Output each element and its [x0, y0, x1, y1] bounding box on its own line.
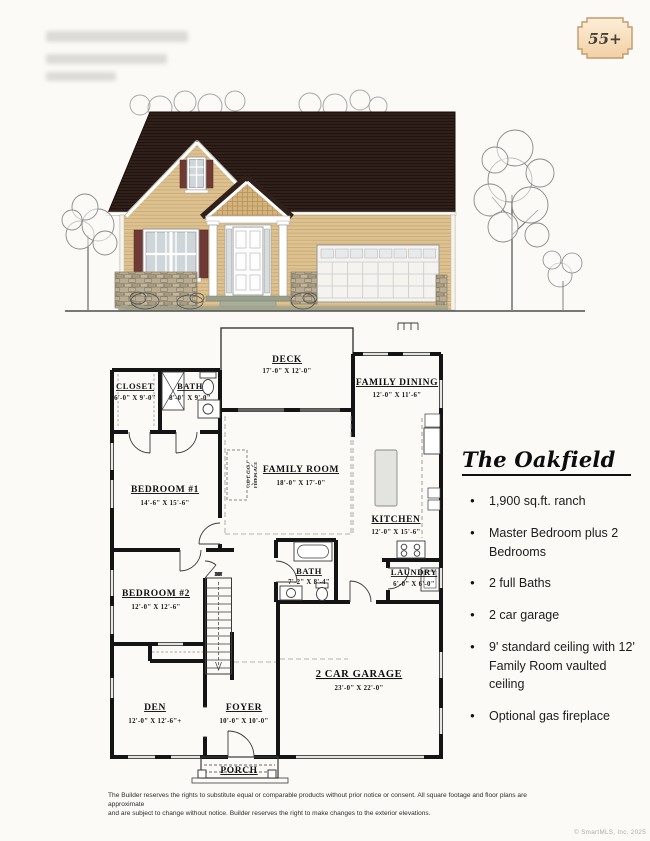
attic-window [180, 157, 213, 193]
room-label-foyer: FOYER [226, 703, 262, 713]
room-dims-kitchen: 12'-0" X 15'-6" [371, 529, 420, 536]
badge-label: 55+ [588, 30, 621, 48]
room-dims-foyer: 10'-0" X 10'-0" [219, 718, 268, 725]
house-elevation-illustration [60, 85, 590, 315]
room-label-closet: CLOSET [116, 381, 154, 391]
room-label-bedroom1: BEDROOM #1 [131, 485, 199, 495]
garage-door [317, 245, 439, 302]
faded-letterhead-line [46, 31, 188, 42]
room-label-deck: DECK [272, 355, 302, 365]
room-dims-family-room: 18'-0" X 17'-0" [276, 480, 325, 487]
front-door [225, 225, 271, 297]
disclaimer-line2: and are subject to change without notice… [108, 809, 560, 818]
room-label-garage: 2 CAR GARAGE [316, 669, 403, 680]
builder-disclaimer: The Builder reserves the rights to subst… [108, 791, 560, 819]
room-label-den: DEN [144, 703, 166, 713]
feature-item: 2 car garage [462, 606, 642, 625]
age-55-plus-badge: 55+ [576, 16, 634, 61]
floor-plan: DN OPT. GAS FIREPLACE [88, 322, 462, 788]
room-dims-den: 12'-0" X 12'-6"+ [128, 718, 181, 725]
kitchen-fixtures [375, 414, 440, 558]
stairs-dn-label: DN [215, 572, 222, 577]
room-label-family-dining: FAMILY DINING [356, 378, 438, 388]
room-dims-garage: 23'-0" X 22'-0" [334, 685, 383, 692]
walls-thick [112, 354, 441, 759]
feature-item: 9' standard ceiling with 12' Family Room… [462, 638, 642, 694]
feature-list: 1,900 sq.ft. ranch Master Bedroom plus 2… [462, 492, 642, 726]
room-label-laundry: LAUNDRY [391, 567, 437, 577]
feature-item: Optional gas fireplace [462, 707, 642, 726]
model-title: The Oakfield [462, 447, 631, 476]
faded-letterhead-line [46, 54, 167, 64]
disclaimer-line1: The Builder reserves the rights to subst… [108, 791, 560, 809]
flyer-page: 55+ [0, 0, 650, 841]
room-label-porch: PORCH [220, 766, 257, 776]
room-label-family-room: FAMILY ROOM [263, 465, 339, 475]
room-dims-bedroom1: 14'-6" X 15'-6" [140, 500, 189, 507]
room-dims-bedroom2: 12'-0" X 12'-6" [131, 604, 180, 611]
room-label-bedroom2: BEDROOM #2 [122, 589, 190, 599]
stairs: DN [206, 572, 232, 675]
optional-fireplace [227, 450, 256, 500]
copyright-watermark: © SmartMLS, Inc. 2025 [574, 829, 646, 836]
room-dims-family-dining: 12'-0" X 11'-6" [373, 392, 422, 399]
feature-item: 1,900 sq.ft. ranch [462, 492, 642, 511]
room-dims-bath-mid: 7'-2" X 8'-4" [288, 579, 330, 586]
room-label-bath-top: BATH [177, 381, 203, 391]
model-info-panel: The Oakfield 1,900 sq.ft. ranch Master B… [462, 447, 642, 739]
room-dims-bath-top: 8'-0" X 9'-0" [169, 395, 211, 402]
room-dims-deck: 17'-0" X 12'-0" [262, 368, 311, 375]
room-label-kitchen: KITCHEN [371, 515, 420, 525]
fireplace-label-line2: FIREPLACE [253, 462, 258, 489]
feature-item: 2 full Baths [462, 574, 642, 593]
feature-item: Master Bedroom plus 2 Bedrooms [462, 524, 642, 562]
room-label-bath-mid: BATH [296, 566, 322, 576]
right-tree [474, 130, 582, 310]
room-dims-laundry: 6'-0" X 6'-0" [393, 581, 435, 588]
faded-letterhead-line [46, 72, 116, 81]
fireplace-label-line1: OPT. GAS [246, 464, 251, 485]
room-dims-closet: 6'-0" X 9'-0" [114, 395, 156, 402]
